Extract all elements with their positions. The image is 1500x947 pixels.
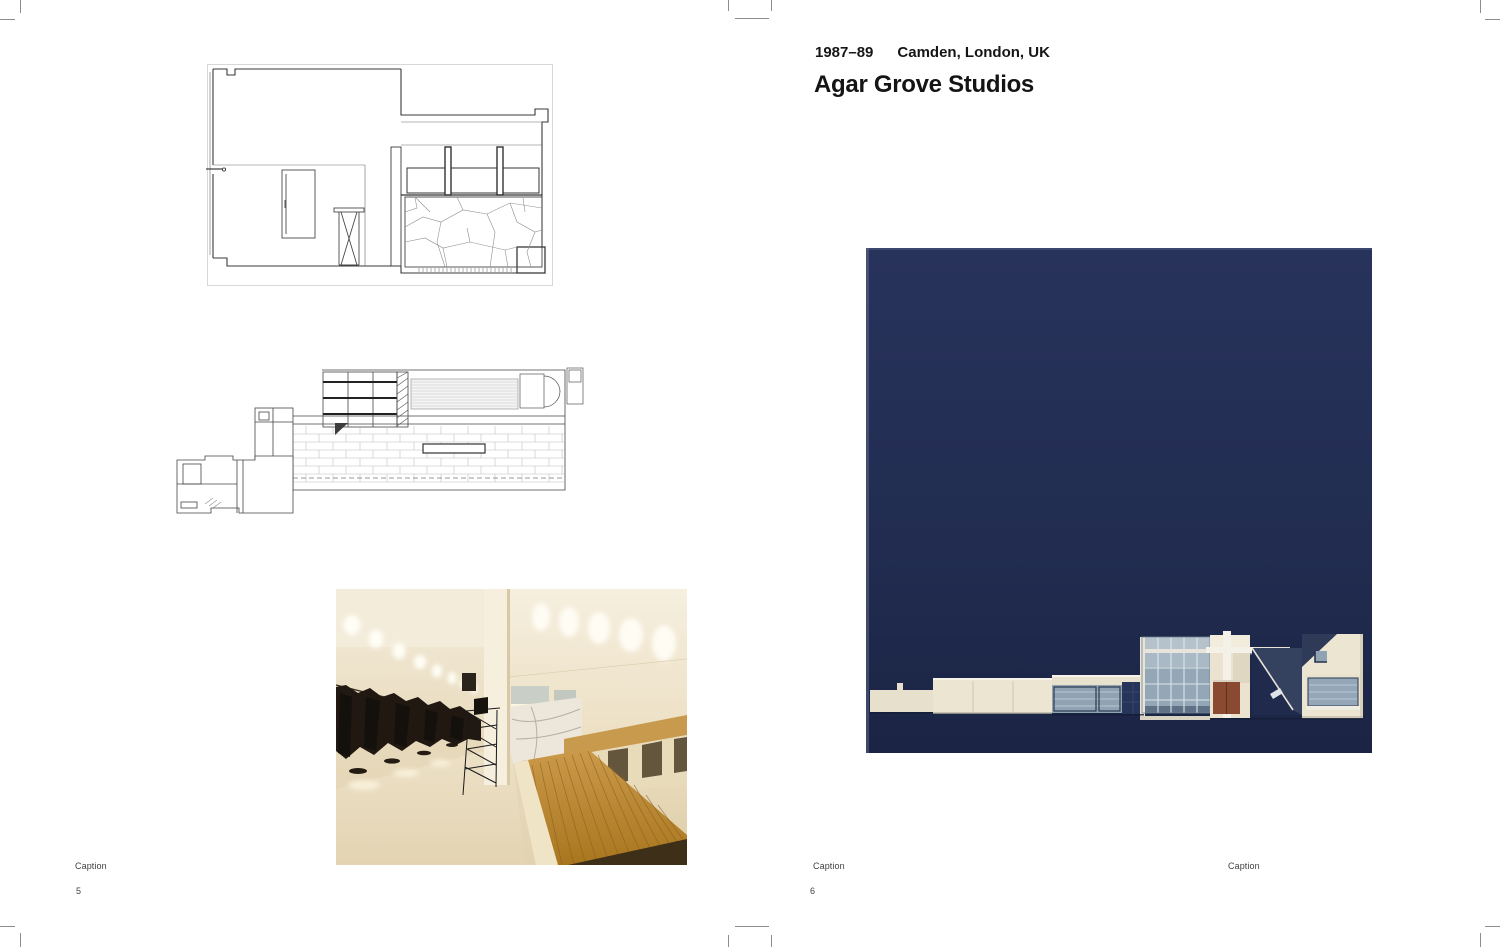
project-dates: 1987–89 xyxy=(815,44,873,61)
book-spread: Caption 5 1987–89Camden, London, UK Agar… xyxy=(0,0,1500,947)
fold-mark-top-v1 xyxy=(728,0,729,11)
elevation-artwork xyxy=(866,248,1372,753)
crop-mark-top-right-h xyxy=(1485,19,1500,20)
crop-mark-bottom-left-h xyxy=(0,926,15,927)
fold-mark-top-v2 xyxy=(771,0,772,11)
right-page-caption-2: Caption xyxy=(1228,861,1260,871)
fold-mark-bottom-v1 xyxy=(728,935,729,947)
project-location: Camden, London, UK xyxy=(897,44,1050,61)
fold-mark-bottom-v2 xyxy=(771,935,772,947)
fold-mark-top-h xyxy=(735,18,769,19)
right-page-number: 6 xyxy=(810,886,815,896)
crop-mark-bottom-right-h xyxy=(1485,926,1500,927)
project-meta: 1987–89Camden, London, UK xyxy=(815,44,1050,61)
crop-mark-top-left-v xyxy=(20,0,21,13)
left-page-caption: Caption xyxy=(75,861,107,871)
fold-mark-bottom-h xyxy=(735,926,769,927)
crop-mark-bottom-right-v xyxy=(1480,933,1481,947)
right-page-caption: Caption xyxy=(813,861,845,871)
plan-drawing xyxy=(175,352,585,522)
crop-mark-top-left-h xyxy=(0,19,15,20)
crop-mark-bottom-left-v xyxy=(20,933,21,947)
interior-photo xyxy=(336,589,687,865)
crop-mark-top-right-v xyxy=(1480,0,1481,13)
project-title: Agar Grove Studios xyxy=(814,71,1034,99)
section-drawing xyxy=(205,62,555,290)
left-page-number: 5 xyxy=(76,886,81,896)
